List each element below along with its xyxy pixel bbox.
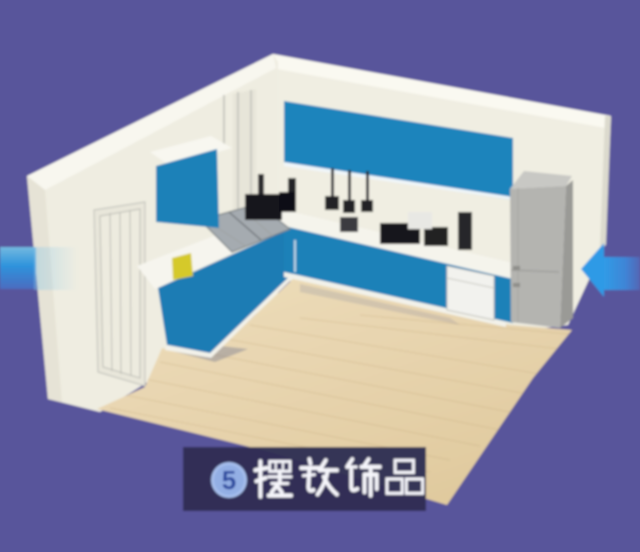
svg-text:5: 5 [222,465,236,495]
